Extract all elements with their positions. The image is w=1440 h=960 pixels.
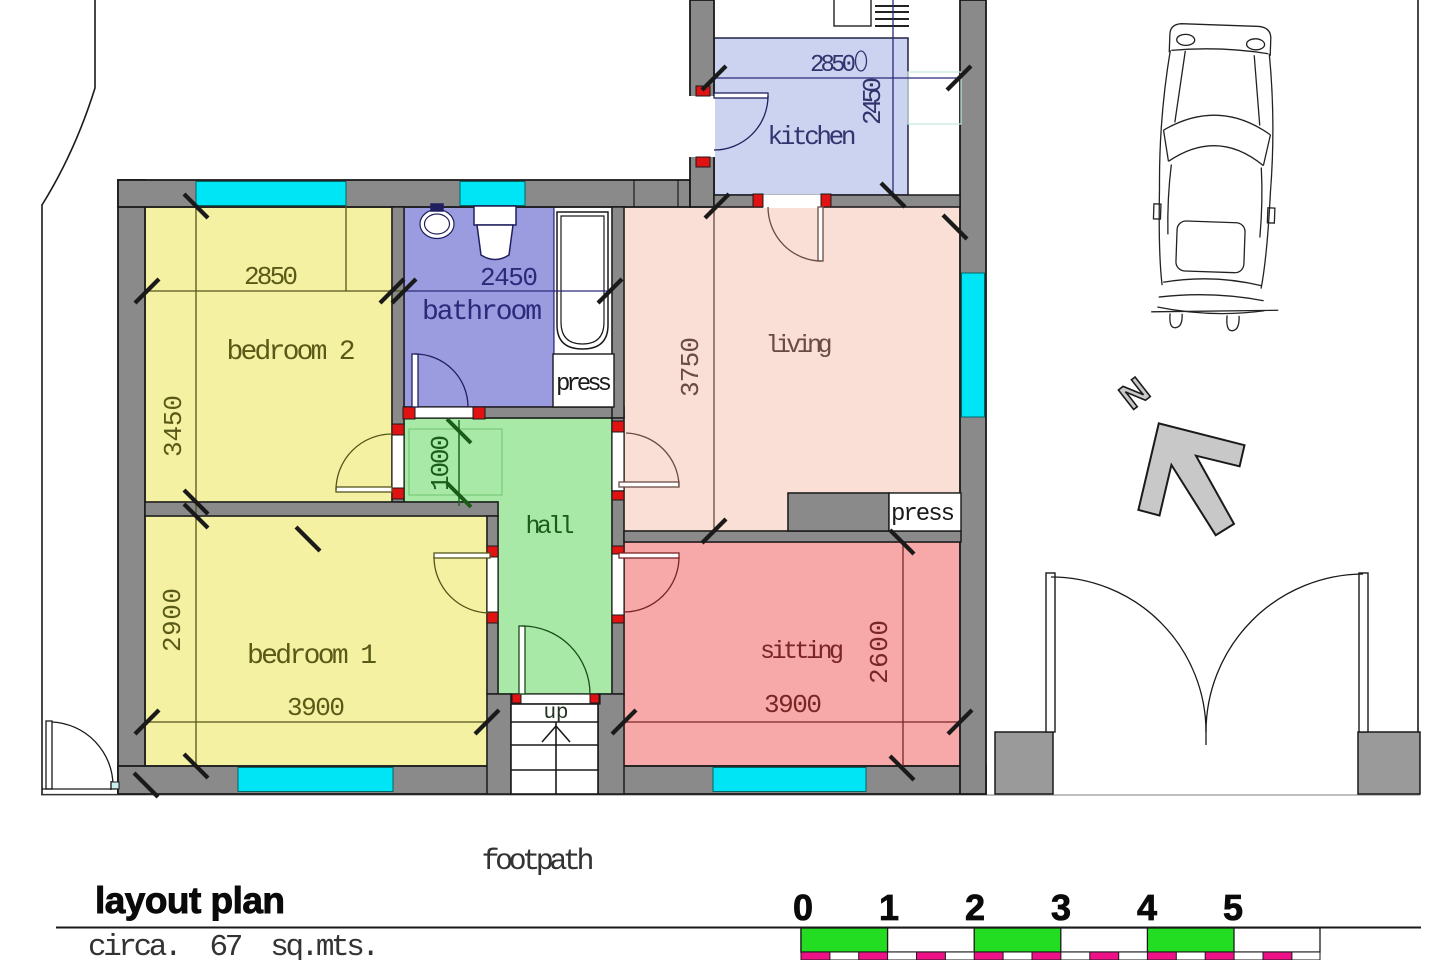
- svg-text:2850: 2850: [810, 52, 856, 79]
- svg-text:up: up: [544, 702, 569, 725]
- svg-text:3: 3: [1051, 887, 1071, 928]
- svg-text:hall: hall: [526, 512, 575, 541]
- svg-text:3450: 3450: [159, 395, 189, 457]
- svg-text:2850: 2850: [244, 262, 298, 292]
- svg-text:circa. 67 sq.mts.: circa. 67 sq.mts.: [88, 930, 380, 960]
- svg-text:1: 1: [879, 887, 899, 928]
- svg-text:press: press: [556, 371, 612, 398]
- svg-text:2900: 2900: [158, 588, 188, 652]
- svg-text:3900: 3900: [287, 693, 345, 723]
- svg-text:3900: 3900: [764, 690, 822, 720]
- svg-text:5: 5: [1223, 887, 1243, 928]
- svg-text:layout plan: layout plan: [95, 880, 285, 921]
- svg-text:living: living: [766, 331, 833, 360]
- svg-text:sitting: sitting: [760, 637, 844, 666]
- svg-text:0: 0: [793, 887, 813, 928]
- svg-text:2450: 2450: [858, 77, 888, 125]
- svg-text:footpath: footpath: [482, 845, 595, 879]
- svg-text:bathroom: bathroom: [422, 297, 542, 328]
- svg-text:bedroom 1: bedroom 1: [247, 641, 377, 672]
- svg-text:3750: 3750: [676, 337, 706, 397]
- svg-text:press: press: [891, 501, 955, 528]
- svg-text:2450: 2450: [480, 263, 538, 293]
- svg-text:kitchen: kitchen: [768, 122, 857, 152]
- svg-text:2600: 2600: [865, 620, 895, 684]
- svg-text:2: 2: [965, 887, 985, 928]
- svg-text:4: 4: [1137, 887, 1157, 928]
- svg-text:1000: 1000: [426, 435, 456, 491]
- svg-text:bedroom 2: bedroom 2: [227, 337, 356, 368]
